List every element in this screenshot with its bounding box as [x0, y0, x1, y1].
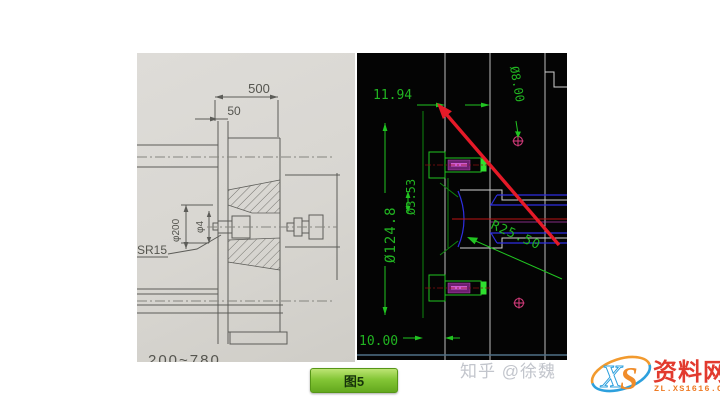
- bottom-range-label: 200~780: [148, 352, 221, 362]
- zhihu-watermark: 知乎 @徐魏: [460, 357, 556, 382]
- lower-hatch-section: [228, 238, 280, 270]
- label-sr15: SR15: [137, 243, 167, 257]
- dim-124-8-label: Ø124.8: [383, 206, 399, 263]
- figure-caption-label: 图5: [344, 371, 364, 390]
- site-url-watermark: ZL.XS1616.COM: [654, 384, 720, 394]
- cad-screenshot: 11.94 Ø8.00 Ø3.53 Ø124.8 R25.50 10.00: [357, 53, 567, 360]
- figure-canvas: 500 50 φ200 φ4 SR15 200~780: [0, 0, 720, 405]
- xs-logo-icon: X S: [586, 344, 656, 404]
- dim-500-label: 500: [248, 81, 270, 96]
- upper-hatch-section: [228, 180, 280, 213]
- figure-caption-badge: 图5: [310, 368, 398, 393]
- dim-11-94-label: 11.94: [373, 88, 412, 103]
- cad-drawing-graphic: 11.94 Ø8.00 Ø3.53 Ø124.8 R25.50 10.00: [357, 53, 567, 360]
- dim-phi200-label: φ200: [171, 218, 182, 242]
- site-name-watermark: 资料网: [653, 352, 720, 387]
- dim-8-00-label: Ø8.00: [507, 65, 527, 103]
- paper-drawing-graphic: 500 50 φ200 φ4 SR15 200~780: [137, 53, 355, 362]
- dim-phi4-label: φ4: [195, 221, 206, 233]
- paper-drawing-photo: 500 50 φ200 φ4 SR15 200~780: [137, 53, 355, 362]
- dim-10-00-label: 10.00: [359, 334, 398, 349]
- logo-letter-s: S: [620, 360, 638, 396]
- dim-3-53-label: Ø3.53: [404, 179, 418, 215]
- dim-50-label: 50: [227, 104, 241, 118]
